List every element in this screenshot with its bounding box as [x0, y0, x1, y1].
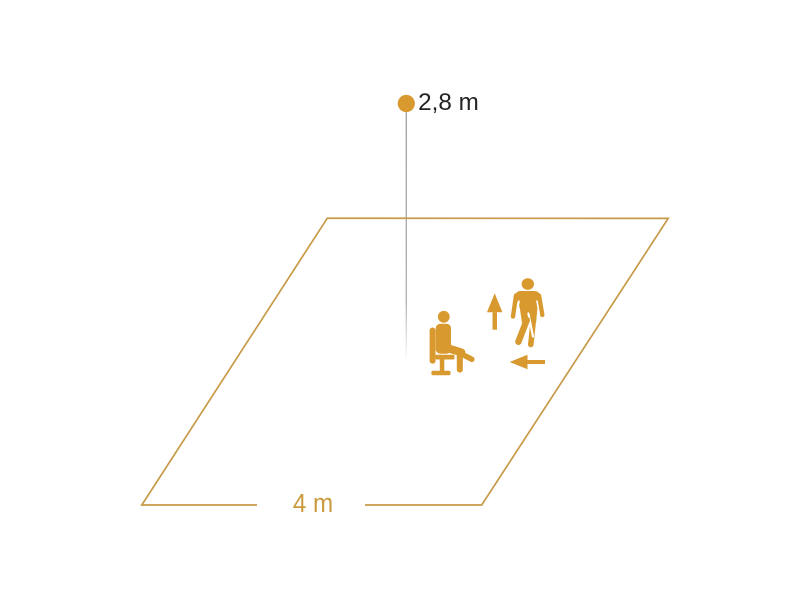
svg-text:2,8 m: 2,8 m [418, 89, 479, 116]
svg-text:4 m: 4 m [293, 488, 333, 518]
